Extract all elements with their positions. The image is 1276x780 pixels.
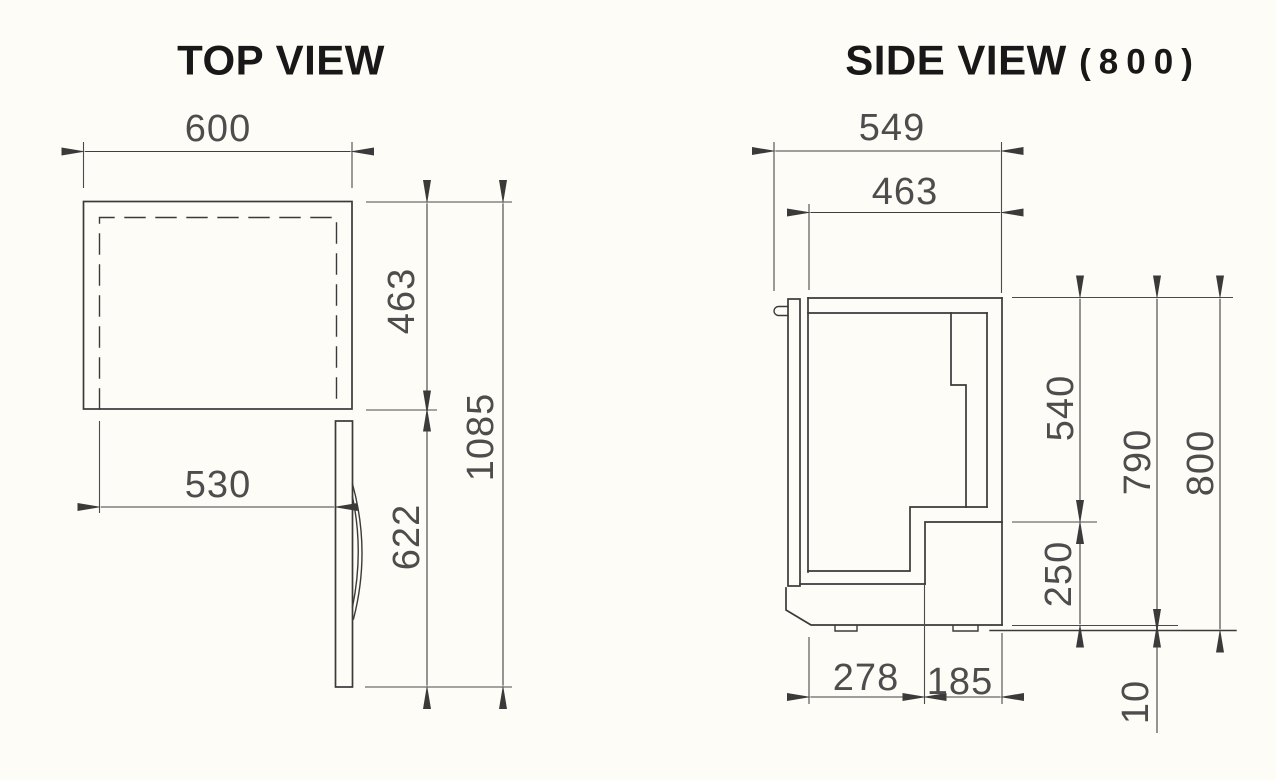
dim-label-base-back-depth: 185 xyxy=(927,661,993,703)
drawing-canvas: TOP VIEW 600 530 463 622 1085 SIDE VIEW xyxy=(0,0,1276,780)
dim-label-total-depth: 549 xyxy=(859,107,925,149)
top-view-interior-dashed-outline xyxy=(100,218,337,410)
dim-label-base-front-depth: 278 xyxy=(833,657,899,699)
dim-label-depth: 463 xyxy=(381,268,423,334)
side-view-rear-foot xyxy=(953,626,978,631)
top-view-title: TOP VIEW xyxy=(177,37,385,84)
top-view: TOP VIEW 600 530 463 622 1085 xyxy=(84,37,513,688)
side-view-door xyxy=(788,299,800,586)
side-view-front-foot xyxy=(835,626,857,631)
side-view: SIDE VIEW (800) 549 463 540 xyxy=(774,37,1236,734)
dim-label-body-height: 790 xyxy=(1117,429,1159,495)
top-view-door-handle-inner-arc xyxy=(353,497,359,607)
dim-label-compressor-height: 250 xyxy=(1038,541,1080,607)
dim-label-body-depth: 463 xyxy=(872,171,938,213)
technical-drawing-page: TOP VIEW 600 530 463 622 1085 SIDE VIEW xyxy=(0,0,1276,780)
dim-label-width: 600 xyxy=(185,108,251,150)
dim-label-door-swing: 622 xyxy=(386,504,428,570)
dim-label-opening-width: 530 xyxy=(185,464,251,506)
dim-label-total-depth-door-open: 1085 xyxy=(460,393,502,482)
side-view-interior-bottom-step xyxy=(808,507,987,571)
dim-label-foot-height: 10 xyxy=(1115,680,1157,724)
side-view-back-duct xyxy=(951,313,966,507)
dim-label-total-height: 800 xyxy=(1180,430,1222,496)
side-view-title: SIDE VIEW xyxy=(845,37,1067,84)
dim-label-upper-section-height: 540 xyxy=(1040,375,1082,441)
side-view-door-handle xyxy=(774,307,788,316)
side-view-base-and-front-bevel xyxy=(786,588,1002,625)
side-view-compressor-compartment xyxy=(925,522,1002,584)
side-view-subtitle: (800) xyxy=(1079,43,1201,82)
top-view-open-door xyxy=(336,421,353,687)
top-view-cabinet-outline xyxy=(84,202,353,410)
